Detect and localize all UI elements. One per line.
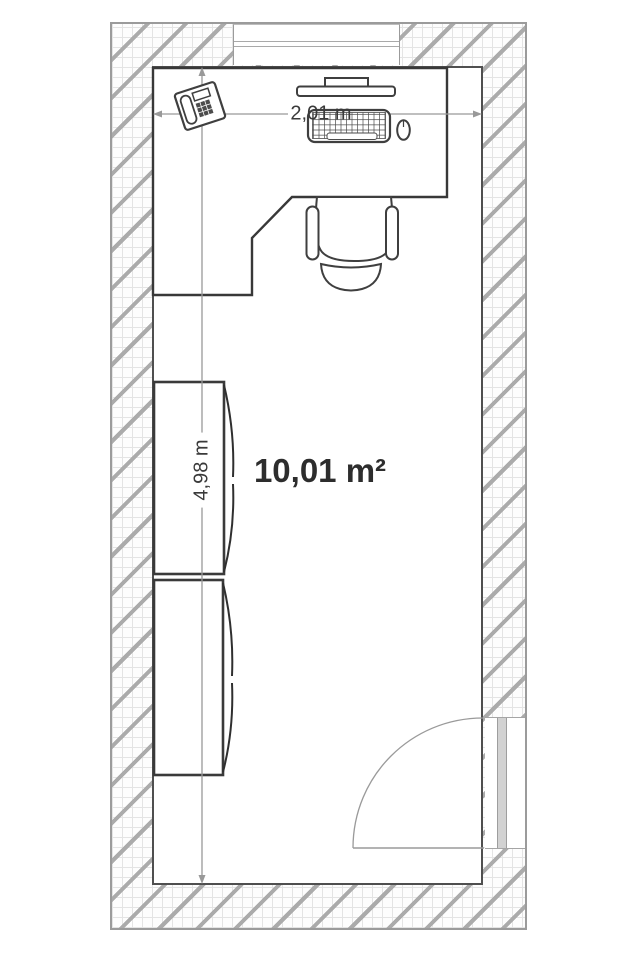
room-area-label: 10,01 m² <box>254 452 386 490</box>
floor-plan: 2,01 m 4,98 m 10,01 m² <box>0 0 640 960</box>
mouse-icon[interactable] <box>397 120 410 140</box>
width-dimension-label: 2,01 m <box>290 103 351 126</box>
cabinet-icon[interactable] <box>154 580 232 775</box>
height-dimension-label: 4,98 m <box>189 432 216 507</box>
door-swing-icon[interactable] <box>353 718 484 848</box>
office-chair-icon[interactable] <box>307 197 399 291</box>
